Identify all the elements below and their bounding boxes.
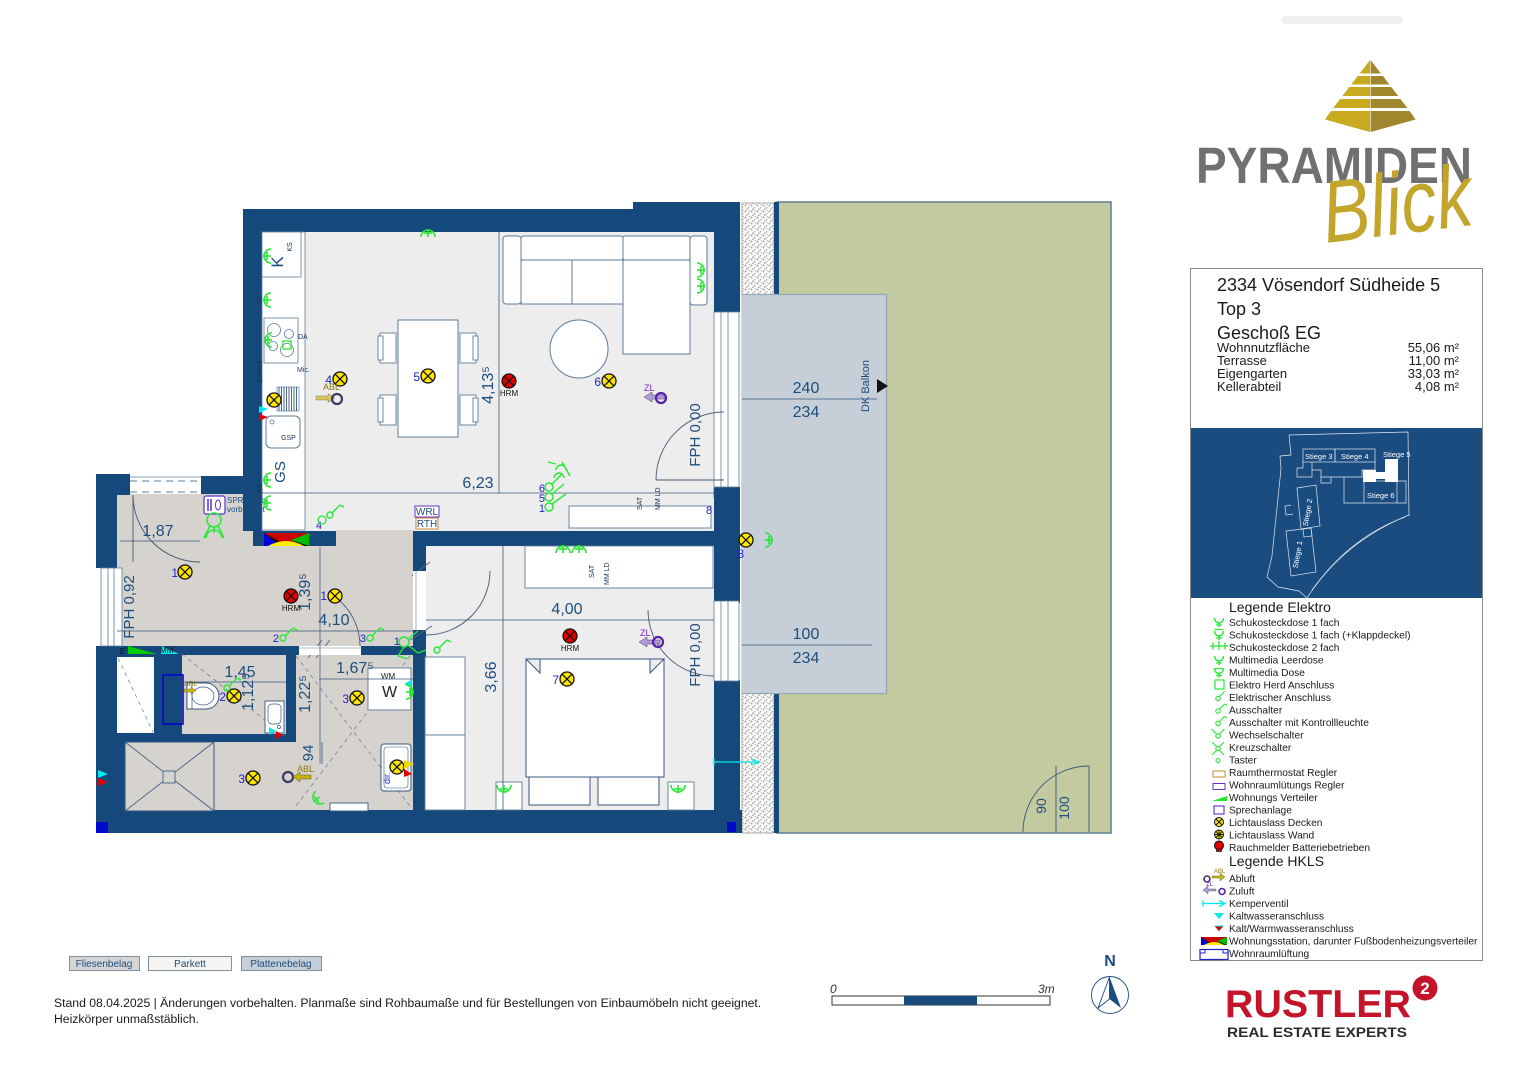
svg-text:Raumthermostat Regler: Raumthermostat Regler <box>1229 768 1338 779</box>
svg-text:Wohnungs Verteiler: Wohnungs Verteiler <box>1229 793 1318 804</box>
svg-text:ABL: ABL <box>1214 869 1226 875</box>
svg-text:RTH: RTH <box>417 519 437 530</box>
svg-text:FPH 0,00: FPH 0,00 <box>687 403 704 466</box>
svg-text:3: 3 <box>360 633 366 645</box>
svg-text:1: 1 <box>539 503 545 515</box>
svg-text:MM LD: MM LD <box>655 487 662 510</box>
svg-text:vorbereitet: vorbereitet <box>227 505 266 514</box>
svg-text:Elektrischer Anschluss: Elektrischer Anschluss <box>1229 693 1331 704</box>
svg-text:1,87: 1,87 <box>142 523 173 540</box>
svg-text:Ausschalter: Ausschalter <box>1229 706 1283 717</box>
svg-text:94: 94 <box>300 745 317 762</box>
svg-text:ABL: ABL <box>184 681 197 688</box>
svg-text:Kemperventil: Kemperventil <box>1229 899 1288 910</box>
svg-text:3: 3 <box>238 772 245 786</box>
svg-text:8: 8 <box>706 505 712 517</box>
svg-text:WM: WM <box>381 672 396 681</box>
svg-text:SPR Video: SPR Video <box>227 496 267 505</box>
svg-text:Ausschalter mit Kontrollleucht: Ausschalter mit Kontrollleuchte <box>1229 718 1369 729</box>
svg-text:Schukosteckdose 1 fach: Schukosteckdose 1 fach <box>1229 618 1339 629</box>
svg-text:HRM: HRM <box>282 604 301 613</box>
svg-text:1: 1 <box>320 589 327 603</box>
svg-text:Kaltwasseranschluss: Kaltwasseranschluss <box>1229 912 1324 923</box>
svg-text:0: 0 <box>830 982 837 996</box>
svg-text:Plattenebelag: Plattenebelag <box>250 959 311 970</box>
svg-text:Stiege 6: Stiege 6 <box>1367 491 1395 500</box>
svg-text:GSP: GSP <box>281 435 296 442</box>
svg-text:AS: AS <box>257 295 264 305</box>
svg-text:100: 100 <box>793 626 820 643</box>
svg-text:Top 3: Top 3 <box>1217 299 1261 319</box>
svg-text:ZL: ZL <box>640 628 651 638</box>
svg-text:Kreuzschalter: Kreuzschalter <box>1229 743 1292 754</box>
svg-text:N: N <box>1104 953 1116 970</box>
svg-text:KS: KS <box>287 242 294 252</box>
svg-text:WRL: WRL <box>416 507 439 518</box>
svg-text:234: 234 <box>793 404 820 421</box>
svg-text:Stiege 4: Stiege 4 <box>1341 452 1369 461</box>
svg-text:GS: GS <box>272 461 289 483</box>
svg-text:MM LD: MM LD <box>604 562 611 585</box>
svg-text:90: 90 <box>1033 798 1049 814</box>
svg-text:2334 Vösendorf Südheide 5: 2334 Vösendorf Südheide 5 <box>1217 275 1440 295</box>
svg-text:Stiege 5: Stiege 5 <box>1383 450 1411 459</box>
svg-text:Wechselschalter: Wechselschalter <box>1229 731 1304 742</box>
svg-text:E: E <box>120 647 125 656</box>
svg-text:Stiege 3: Stiege 3 <box>1305 452 1333 461</box>
svg-text:ZL: ZL <box>644 383 655 393</box>
svg-text:3: 3 <box>342 692 349 706</box>
svg-text:ZL: ZL <box>1206 882 1214 888</box>
svg-text:2: 2 <box>273 633 279 645</box>
svg-text:Stand 08.04.2025 | Änderungen: Stand 08.04.2025 | Änderungen vorbehalte… <box>54 996 761 1010</box>
svg-text:HRM: HRM <box>561 644 580 653</box>
svg-text:AS: AS <box>257 483 264 493</box>
svg-text:HRM: HRM <box>500 389 519 398</box>
svg-text:ABL: ABL <box>323 382 340 392</box>
svg-text:Wohnraumlütungs Regler: Wohnraumlütungs Regler <box>1229 781 1345 792</box>
svg-text:6,23: 6,23 <box>462 475 493 492</box>
svg-text:REAL ESTATE EXPERTS: REAL ESTATE EXPERTS <box>1227 1025 1407 1040</box>
svg-text:FPH 0,92: FPH 0,92 <box>121 575 138 638</box>
svg-text:Multimedia Leerdose: Multimedia Leerdose <box>1229 656 1324 667</box>
svg-text:100: 100 <box>1056 796 1072 820</box>
svg-text:1,12⁵: 1,12⁵ <box>240 673 257 711</box>
svg-text:Legende Elektro: Legende Elektro <box>1229 599 1331 615</box>
svg-text:FPH 0,00: FPH 0,00 <box>687 623 704 686</box>
svg-text:Schukosteckdose 2 fach: Schukosteckdose 2 fach <box>1229 643 1339 654</box>
svg-text:7: 7 <box>552 673 559 687</box>
svg-text:6: 6 <box>594 375 601 389</box>
svg-text:4,00: 4,00 <box>551 601 582 618</box>
svg-text:4,10: 4,10 <box>318 612 349 629</box>
svg-text:Sprechanlage: Sprechanlage <box>1229 806 1292 817</box>
svg-text:SAT: SAT <box>637 496 644 510</box>
svg-text:Multimedia Dose: Multimedia Dose <box>1229 668 1305 679</box>
svg-text:Lichtauslass Wand: Lichtauslass Wand <box>1229 831 1314 842</box>
svg-text:Kalt/Warmwasseranschluss: Kalt/Warmwasseranschluss <box>1229 924 1354 935</box>
svg-text:Mic.: Mic. <box>297 367 310 374</box>
svg-text:240: 240 <box>793 380 820 397</box>
svg-text:3m: 3m <box>1038 982 1055 996</box>
svg-text:Legende HKLS: Legende HKLS <box>1229 853 1324 869</box>
svg-text:Wohnraumlüftung: Wohnraumlüftung <box>1229 949 1310 960</box>
svg-text:Zuluft: Zuluft <box>1229 887 1255 898</box>
svg-text:4,08 m²: 4,08 m² <box>1415 379 1460 394</box>
svg-text:Parkett: Parkett <box>174 959 206 970</box>
svg-text:3,66: 3,66 <box>483 661 500 692</box>
svg-text:Taster: Taster <box>1229 756 1257 767</box>
svg-text:2: 2 <box>219 690 226 704</box>
svg-text:DA: DA <box>298 334 308 341</box>
svg-text:Fliesenbelag: Fliesenbelag <box>76 959 133 970</box>
svg-text:1: 1 <box>394 636 400 648</box>
svg-text:Lichtauslass Decken: Lichtauslass Decken <box>1229 818 1322 829</box>
svg-text:RUSTLER: RUSTLER <box>1225 983 1411 1026</box>
svg-text:SAT: SAT <box>589 564 596 578</box>
svg-text:Heizkörper unmaßstäblich.: Heizkörper unmaßstäblich. <box>54 1012 199 1026</box>
svg-text:Elektro Herd Anschluss: Elektro Herd Anschluss <box>1229 681 1334 692</box>
svg-text:Kellerabteil: Kellerabteil <box>1217 379 1281 394</box>
svg-text:Abluft: Abluft <box>1229 874 1255 885</box>
svg-text:MM: MM <box>160 646 174 655</box>
svg-text:dir.: dir. <box>382 772 392 784</box>
svg-text:1,22⁵: 1,22⁵ <box>297 675 314 713</box>
svg-text:E-Herd: E-Herd <box>257 361 264 383</box>
svg-text:Blick: Blick <box>1316 145 1480 262</box>
svg-text:1,67⁵: 1,67⁵ <box>336 660 374 677</box>
svg-text:5: 5 <box>413 370 420 384</box>
svg-text:Wohnungsstation, darunter Fußb: Wohnungsstation, darunter Fußbodenheizun… <box>1229 937 1478 948</box>
svg-text:K: K <box>268 256 287 268</box>
svg-text:1: 1 <box>171 566 178 580</box>
svg-text:4,13⁵: 4,13⁵ <box>480 366 497 404</box>
svg-text:DK Balkon: DK Balkon <box>860 360 872 412</box>
svg-text:2: 2 <box>1420 979 1429 998</box>
svg-text:234: 234 <box>793 650 820 667</box>
svg-text:W: W <box>382 684 398 701</box>
svg-text:8: 8 <box>737 547 744 561</box>
svg-text:Schukosteckdose 1 fach (+Klapp: Schukosteckdose 1 fach (+Klappdeckel) <box>1229 631 1411 642</box>
